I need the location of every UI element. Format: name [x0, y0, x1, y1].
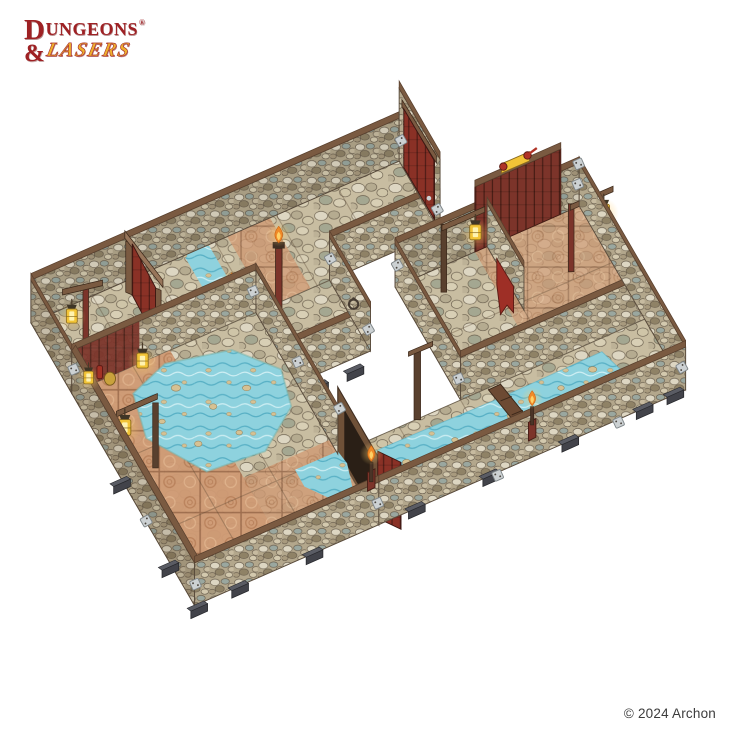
flame-icon — [267, 222, 291, 246]
base-clip — [158, 560, 178, 578]
dungeon-terrain-model — [31, 81, 688, 619]
copyright-text: © 2024 Archon — [624, 706, 716, 721]
keg — [104, 372, 115, 385]
red-bottle — [97, 366, 103, 379]
door-handle — [427, 196, 432, 201]
base-clip — [110, 476, 130, 494]
base-clip — [187, 601, 207, 619]
base-clip — [343, 364, 363, 382]
signpost — [408, 341, 432, 419]
product-photo — [0, 0, 732, 732]
